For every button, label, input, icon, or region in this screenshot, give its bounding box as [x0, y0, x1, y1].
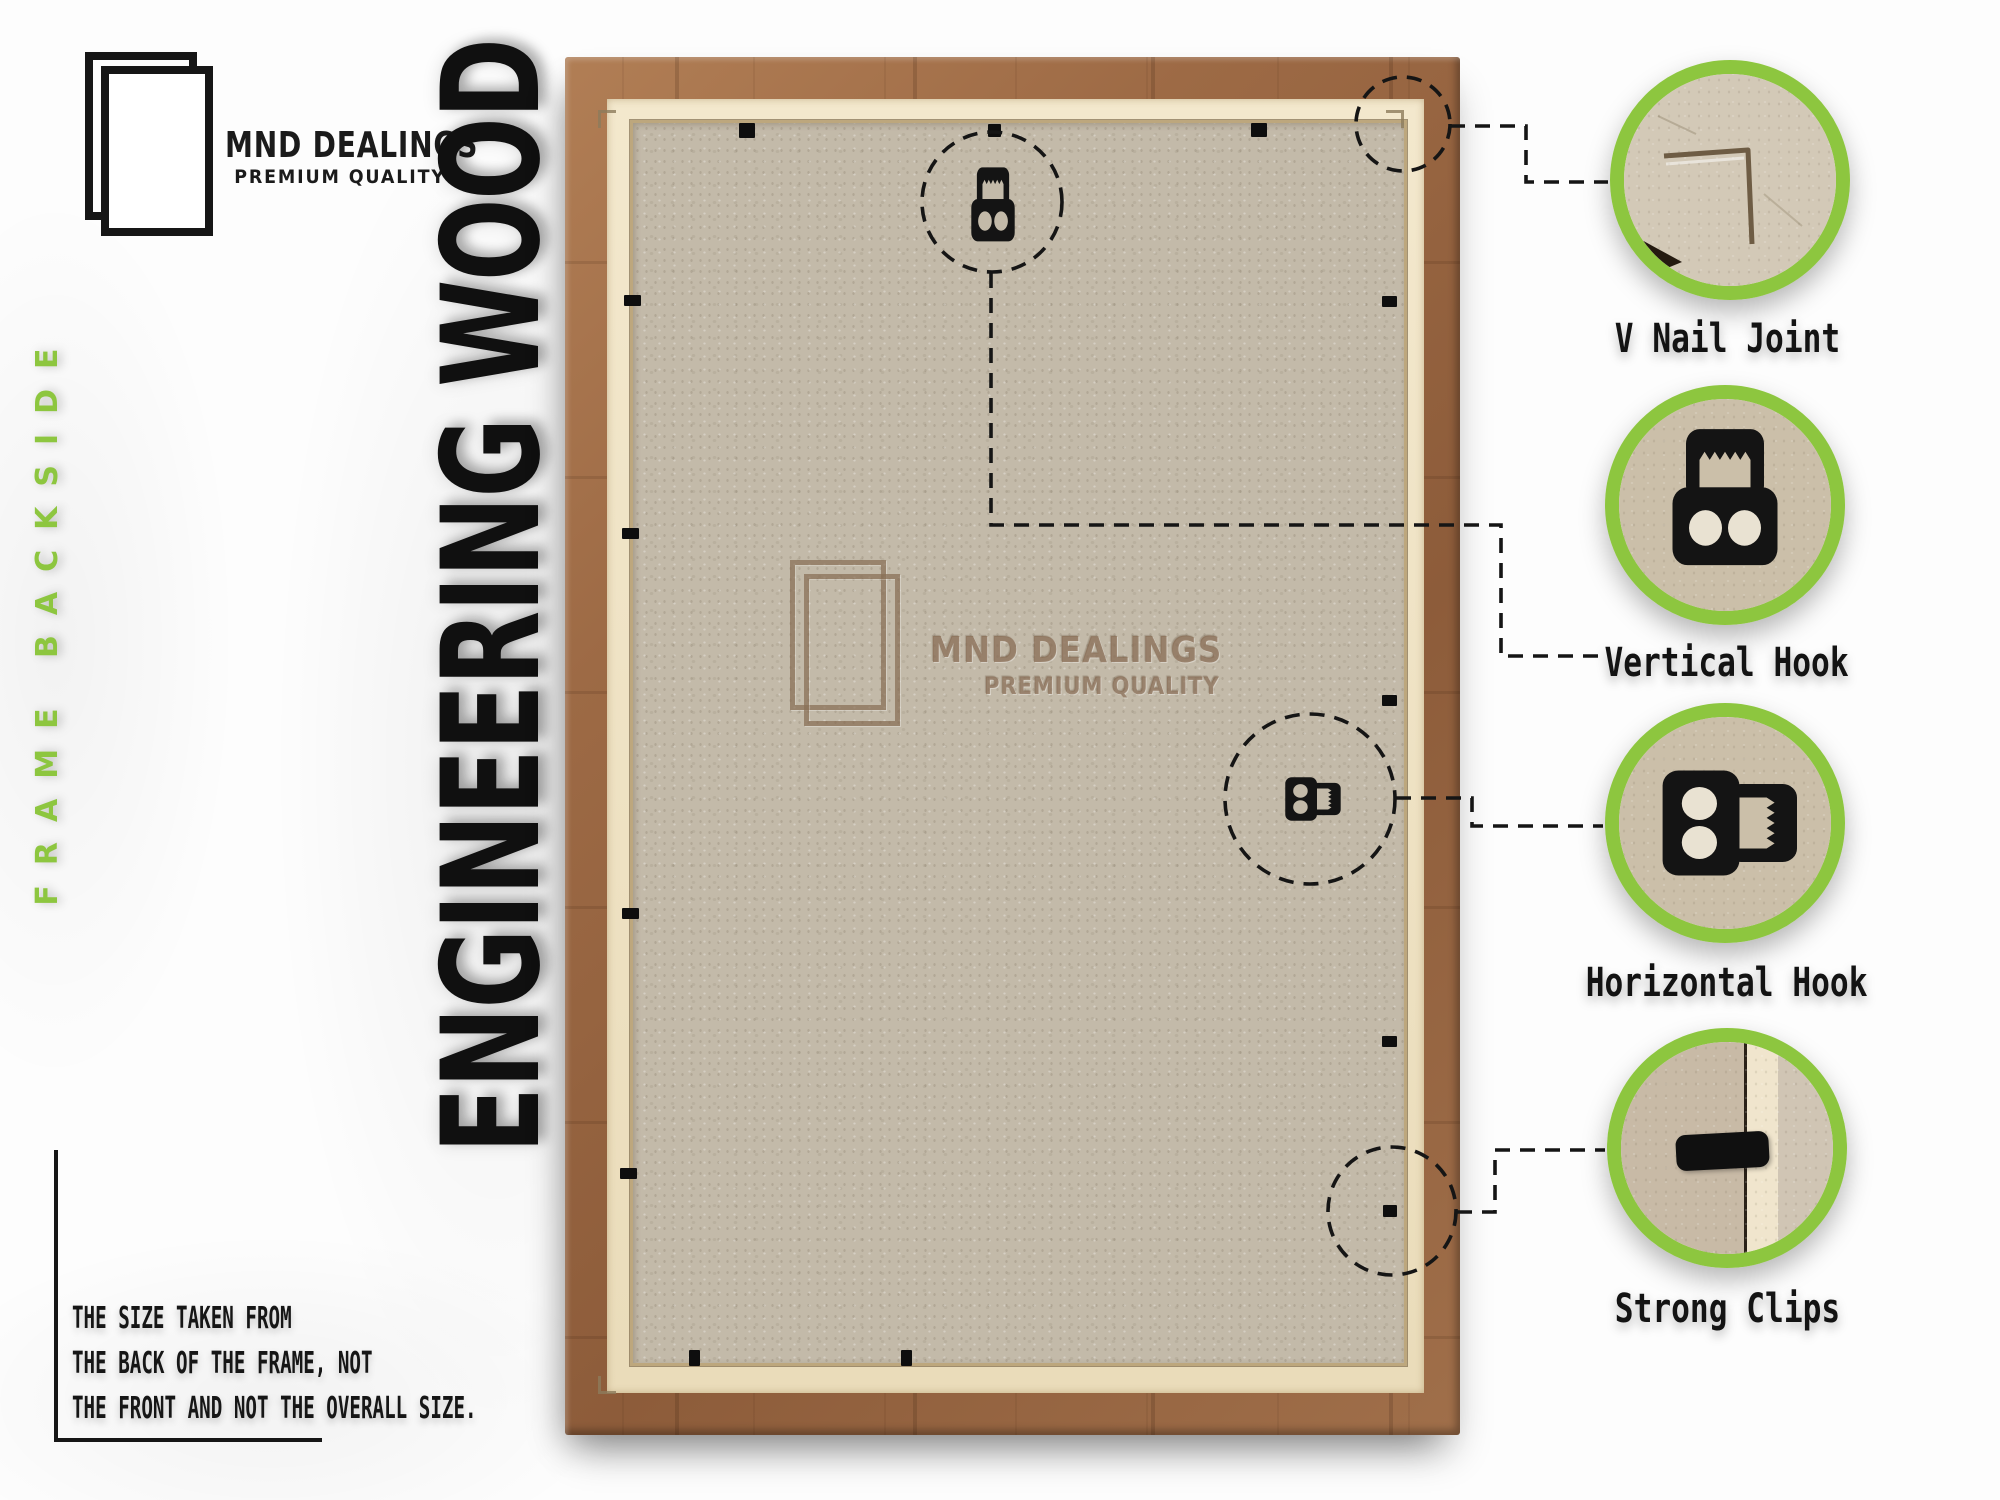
callout-label-strong-clips: Strong Clips: [1527, 1286, 1927, 1332]
rim-corner-mark: [1386, 110, 1404, 128]
clip-icon: [622, 908, 639, 919]
footnote-line: THE BACK OF THE FRAME, NOT: [72, 1341, 477, 1386]
clip-icon: [1382, 1036, 1397, 1047]
callout-label-v-nail-joint: V Nail Joint: [1527, 316, 1927, 362]
watermark-tagline: PREMIUM QUALITY: [968, 672, 1178, 700]
watermark-name: MND DEALINGS: [930, 630, 1222, 671]
clip-icon: [1383, 1205, 1397, 1217]
footnote-rule-horizontal: [54, 1438, 322, 1442]
rim-corner-mark: [598, 110, 616, 128]
watermark-logo-frame-icon: [804, 574, 900, 726]
callout-strong-clips: [1607, 1028, 1847, 1268]
clip-icon: [901, 1350, 912, 1366]
leader-line-strong-clips: [1457, 1150, 1605, 1212]
material-label-engineering-wood: ENGINEERING WOOD: [422, 170, 562, 1370]
clip-icon: [622, 528, 639, 539]
footnote-line: THE FRONT AND NOT THE OVERALL SIZE.: [72, 1386, 477, 1431]
watermark: MND DEALINGS PREMIUM QUALITY: [788, 552, 1228, 762]
size-footnote: THE SIZE TAKEN FROM THE BACK OF THE FRAM…: [72, 1296, 704, 1431]
side-label-frame-backside: FRAME BACKSIDE: [28, 217, 68, 1017]
callout-label-horizontal-hook: Horizontal Hook: [1527, 960, 1927, 1006]
clip-icon: [620, 1168, 637, 1179]
footnote-line: THE SIZE TAKEN FROM: [72, 1296, 477, 1341]
clip-icon: [739, 123, 755, 138]
vertical-hook-icon: [1650, 421, 1800, 583]
horizontal-hook-icon: [1278, 768, 1344, 830]
callout-vertical-hook: [1605, 385, 1845, 625]
clip-icon: [1382, 695, 1397, 706]
vertical-hook-icon: [962, 163, 1024, 251]
footnote-rule-vertical: [54, 1150, 58, 1442]
clip-icon: [1251, 123, 1267, 137]
leader-line-v-nail-joint: [1450, 126, 1608, 182]
callout-label-vertical-hook: Vertical Hook: [1527, 640, 1927, 686]
v-nail-groove-icon: [1624, 74, 1836, 286]
clip-icon: [1382, 296, 1397, 307]
horizontal-hook-icon: [1645, 748, 1805, 898]
strong-clip-icon: [1675, 1131, 1770, 1172]
clip-icon: [988, 124, 1001, 137]
callout-v-nail-joint: [1610, 60, 1850, 300]
callout-horizontal-hook: [1605, 703, 1845, 943]
brand-logo-frame-icon: [101, 66, 213, 236]
frame-backside-infographic: MND DEALINGS PREMIUM QUALITY FRAME BACKS…: [0, 0, 2000, 1500]
clip-icon: [624, 295, 641, 306]
